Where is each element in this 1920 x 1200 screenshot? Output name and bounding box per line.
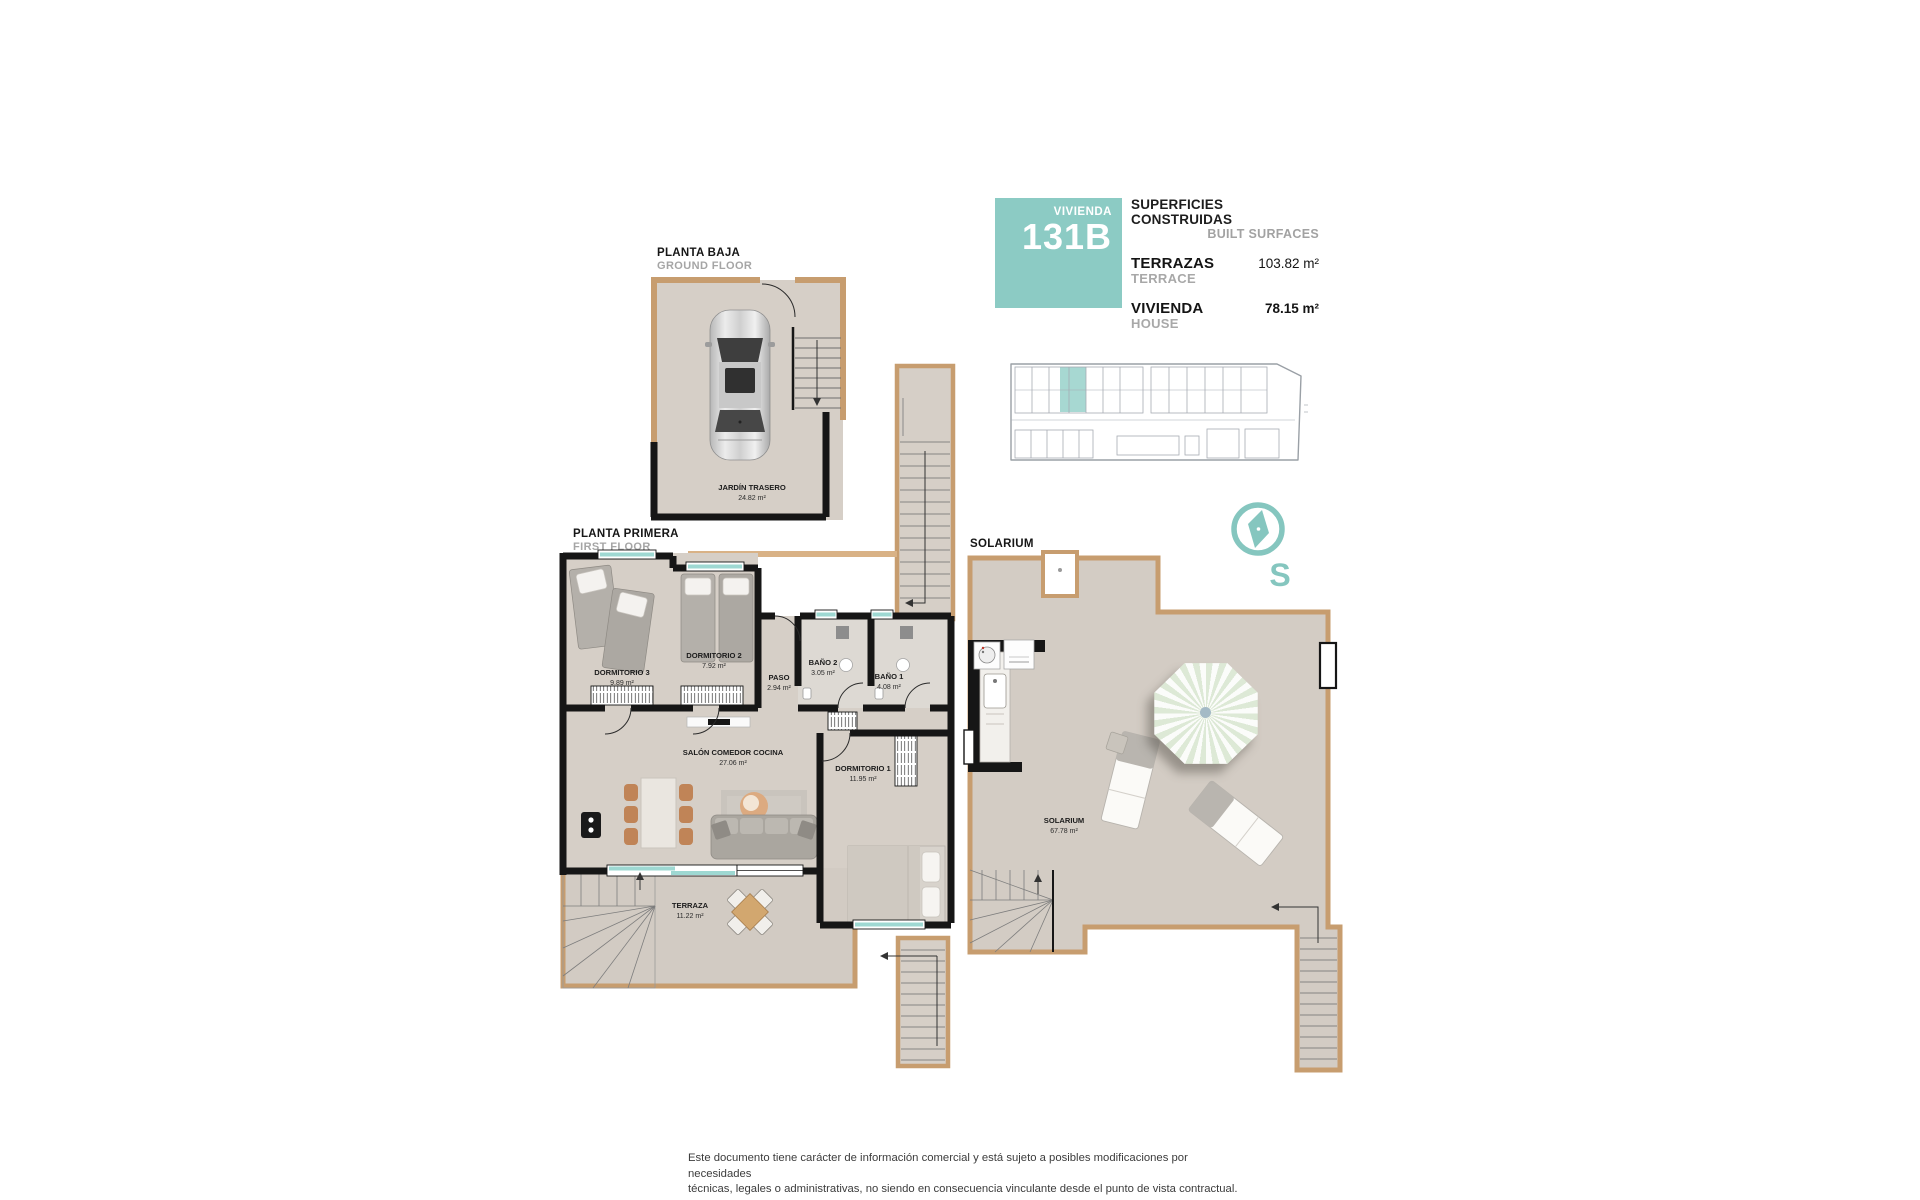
surface-row-vivienda: VIVIENDA HOUSE 78.15 m²	[1131, 300, 1319, 331]
room-label: TERRAZA	[672, 901, 709, 910]
tv-console	[687, 717, 750, 727]
disclaimer-line2: técnicas, legales o administrativas, no …	[688, 1182, 1253, 1198]
room-area: 9.89 m²	[610, 680, 634, 687]
room-label: DORMITORIO 3	[594, 668, 650, 677]
room-label: SOLARIUM	[1044, 816, 1085, 825]
site-plan-current-unit	[1060, 367, 1086, 412]
room-area: 3.05 m²	[811, 670, 835, 677]
site-plan	[995, 350, 1320, 485]
bed	[848, 846, 945, 922]
built-surfaces-table: SUPERFICIES CONSTRUIDAS BUILT SURFACES T…	[1131, 197, 1319, 331]
site-boundary	[1011, 364, 1301, 460]
first-floor-plan: DORMITORIO 3 9.89 m² DORMITORIO 2 7.92 m…	[553, 356, 978, 1086]
surface-label-en: TERRACE	[1131, 271, 1214, 286]
solarium-plan: SOLARIUM 67.78 m²	[960, 548, 1355, 1078]
sliding-door	[607, 865, 737, 876]
ground-floor-title-es: PLANTA BAJA	[657, 247, 752, 259]
surface-row-terrazas: TERRAZAS TERRACE 103.82 m²	[1131, 255, 1319, 286]
exterior-staircase-top	[897, 366, 953, 619]
ground-floor-title: PLANTA BAJA GROUND FLOOR	[657, 247, 752, 272]
surface-value: 78.15 m²	[1265, 300, 1319, 331]
surfaces-title-es: SUPERFICIES CONSTRUIDAS	[1131, 197, 1319, 227]
surface-label-en: HOUSE	[1131, 316, 1203, 331]
room-label: BAÑO 2	[809, 658, 838, 667]
surface-value: 103.82 m²	[1258, 255, 1319, 286]
room-label: DORMITORIO 1	[835, 764, 891, 773]
disclaimer: Este documento tiene carácter de informa…	[688, 1151, 1253, 1198]
dining-table	[624, 778, 693, 848]
sofa	[711, 815, 817, 859]
room-label: DORMITORIO 2	[686, 651, 742, 660]
surface-label-es: VIVIENDA	[1131, 300, 1203, 317]
solarium-outline	[970, 558, 1340, 1070]
surfaces-title-en: BUILT SURFACES	[1131, 227, 1319, 241]
room-area: 2.94 m²	[767, 685, 791, 692]
door-marker	[1320, 643, 1336, 688]
unit-number: 131B	[995, 219, 1112, 255]
shower-box	[1043, 552, 1077, 596]
disclaimer-line1: Este documento tiene carácter de informa…	[688, 1151, 1253, 1182]
room-area: 7.92 m²	[702, 663, 726, 670]
ground-floor-title-en: GROUND FLOOR	[657, 260, 752, 272]
room-label: PASO	[769, 673, 790, 682]
room-label: BAÑO 1	[875, 672, 904, 681]
room-area: 27.06 m²	[719, 760, 747, 767]
parasol-icon	[1150, 659, 1262, 768]
room-area: 4.08 m²	[877, 684, 901, 691]
parasol-center	[1200, 707, 1211, 718]
cooktop-icon	[581, 812, 601, 838]
unit-badge: VIVIENDA 131B	[995, 198, 1122, 308]
surface-label-es: TERRAZAS	[1131, 255, 1214, 272]
shower-drain	[1058, 568, 1062, 572]
exterior-staircase-right	[880, 938, 948, 1066]
plan-sheet: VIVIENDA 131B SUPERFICIES CONSTRUIDAS BU…	[0, 0, 1920, 1200]
room-area: 11.95 m²	[849, 776, 877, 783]
room-area: 11.22 m²	[676, 913, 704, 920]
room-label: SALÓN COMEDOR COCINA	[683, 748, 784, 757]
room-area: 67.78 m²	[1050, 828, 1078, 835]
